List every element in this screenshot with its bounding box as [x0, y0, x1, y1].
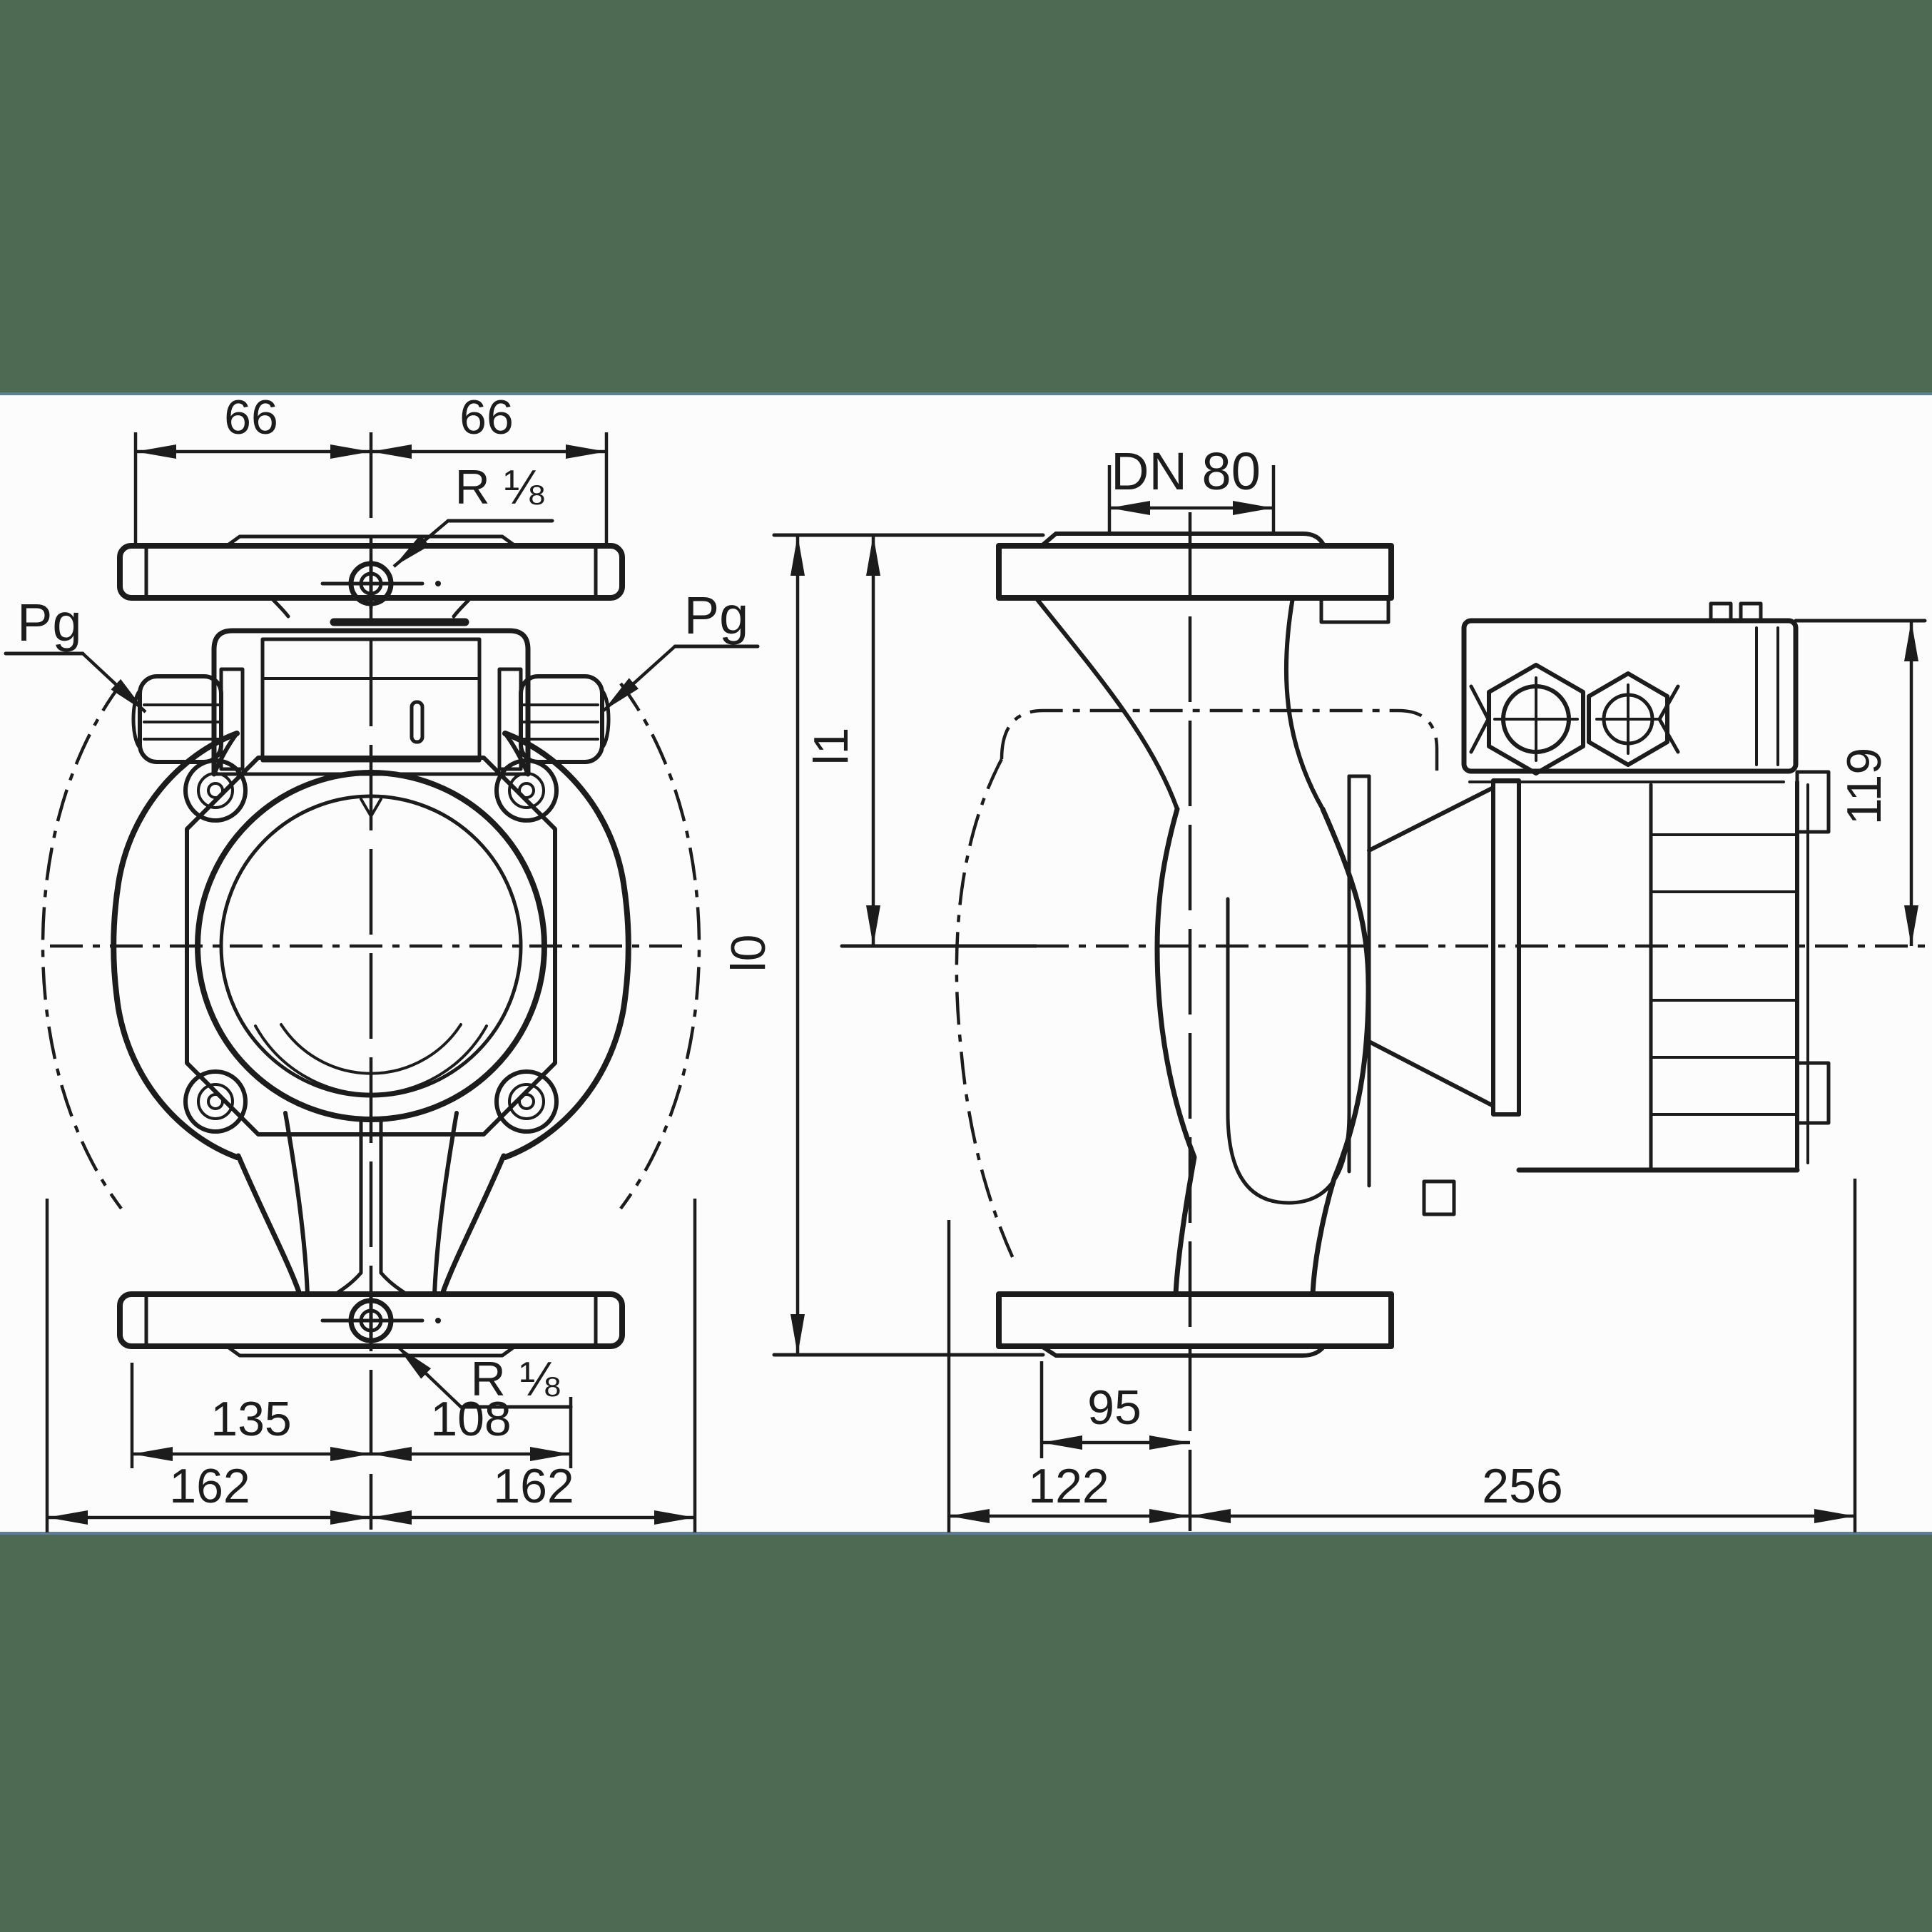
label-pg-left: Pg	[17, 593, 82, 652]
dim-label-108: 108	[430, 1392, 511, 1446]
dim-label-95: 95	[1087, 1381, 1142, 1435]
terminal-box-side	[1464, 604, 1796, 782]
pump-dimensional-drawing: 66 66 R ⅛	[0, 0, 1932, 1932]
dim-label-256: 256	[1482, 1459, 1562, 1513]
dim-label-l1: l1	[804, 728, 858, 766]
label-pg-right: Pg	[684, 586, 749, 645]
dim-label-dn80: DN 80	[1111, 442, 1261, 501]
bottom-letterbox-band	[0, 1535, 1932, 1932]
gland-knockout-small	[1589, 673, 1667, 765]
dim-label-119: 119	[1837, 748, 1891, 825]
dim-label-162-right: 162	[493, 1459, 574, 1513]
dim-label-122: 122	[1028, 1459, 1109, 1513]
dim-label-135: 135	[210, 1392, 291, 1446]
top-letterbox-band	[0, 0, 1932, 392]
dim-label-162-left: 162	[169, 1459, 250, 1513]
label-r18-top: R ⅛	[455, 460, 544, 514]
dim-label-l0: l0	[721, 935, 776, 972]
dim-label-66-left: 66	[224, 390, 278, 444]
dim-label-66-right: 66	[459, 390, 514, 444]
